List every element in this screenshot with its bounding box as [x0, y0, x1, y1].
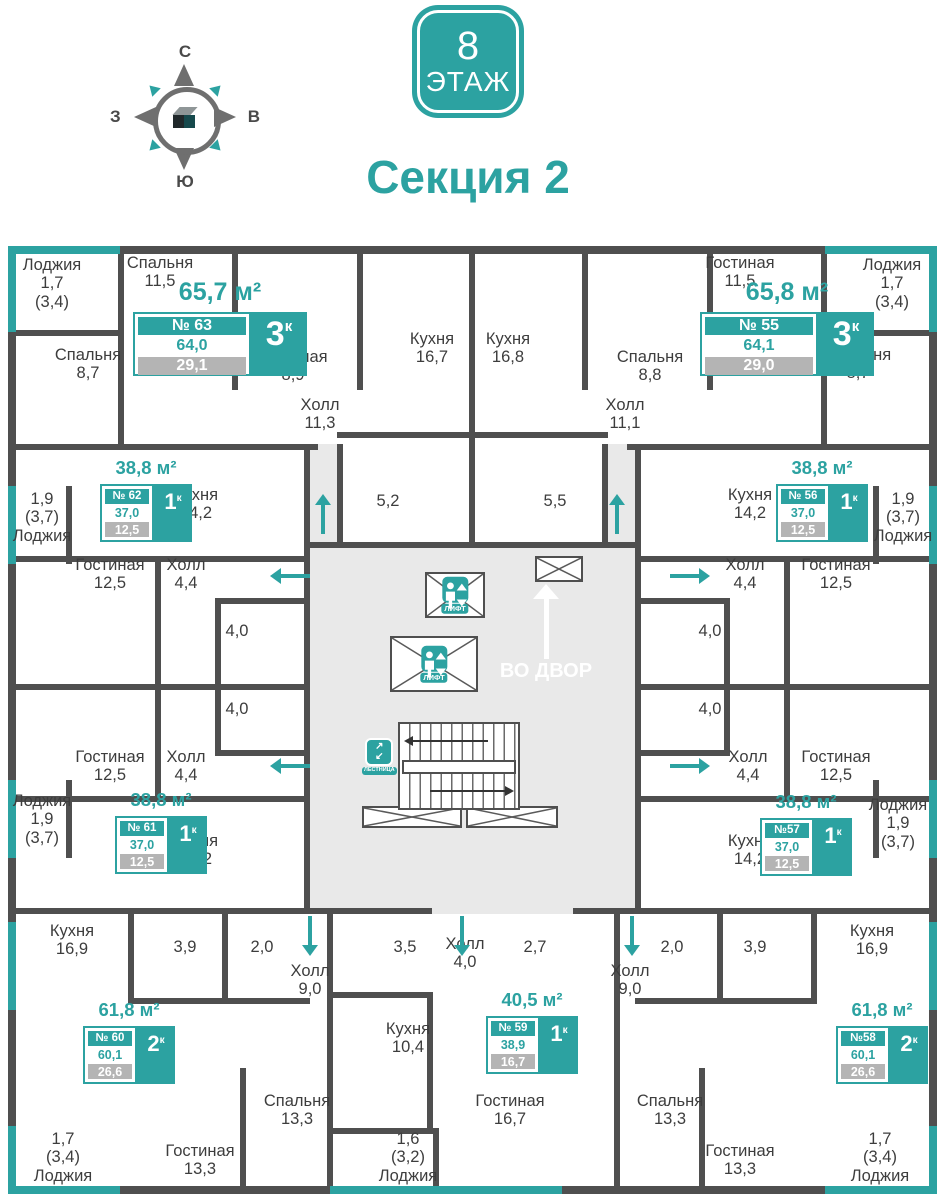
apartment-total-area: 38,8 м²: [792, 457, 853, 479]
apartment-living-area: 60,1: [88, 1048, 132, 1063]
stairwell: ↗↙ ЛЕСТНИЦА: [398, 722, 520, 810]
room-label: 4,0: [699, 700, 722, 718]
room-label: Лоджия1,9(3,7): [13, 792, 71, 847]
entry-arrow-icon: [623, 916, 641, 956]
apartment-card-62[interactable]: 38,8 м² № 6237,012,5 1к: [100, 484, 192, 542]
apartment-secondary-area: 16,7: [491, 1054, 535, 1069]
apartment-living-area: 37,0: [781, 506, 825, 521]
vent-shaft: [535, 556, 583, 582]
apartment-rooms-badge: 2к: [890, 1026, 928, 1084]
room-label: Холл11,1: [606, 396, 645, 433]
entry-arrow-icon: [608, 494, 626, 534]
apartment-secondary-area: 29,0: [705, 357, 813, 375]
apartment-card-63[interactable]: 65,7 м² № 6364,029,1 3к: [133, 312, 307, 376]
room-label: 4,0: [226, 700, 249, 718]
apartment-rooms-badge: 2к: [137, 1026, 175, 1084]
apartment-living-area: 64,1: [705, 337, 813, 355]
room-label: 1,7(3,4)Лоджия: [34, 1130, 92, 1185]
room-label: Гостиная13,3: [165, 1142, 234, 1179]
apartment-rooms-badge: 1к: [830, 484, 868, 542]
apartment-card-55[interactable]: 65,8 м² № 5564,129,0 3к: [700, 312, 874, 376]
room-label: Лоджия1,7(3,4): [23, 256, 81, 311]
room-label: 1,9(3,7)Лоджия: [13, 490, 71, 545]
apartment-secondary-area: 29,1: [138, 357, 246, 375]
apartment-card-57[interactable]: 38,8 м² №5737,012,5 1к: [760, 818, 852, 876]
room-label: 3,9: [744, 938, 767, 956]
room-label: Кухня16,7: [410, 330, 454, 367]
apartment-total-area: 61,8 м²: [99, 999, 160, 1021]
room-label: Лоджия1,7(3,4): [863, 256, 921, 311]
apartment-rooms-badge: 1к: [814, 818, 852, 876]
room-label: Гостиная12,5: [801, 748, 870, 785]
room-label: Холл4,4: [167, 556, 206, 593]
apartment-rooms-badge: 3к: [251, 312, 307, 376]
apartment-secondary-area: 26,6: [841, 1064, 885, 1079]
room-label: Спальня8,8: [617, 348, 683, 385]
elevator-shaft: ЛИФТ: [425, 572, 485, 618]
entry-arrow-icon: [314, 494, 332, 534]
apartment-living-area: 64,0: [138, 337, 246, 355]
apartment-card-60[interactable]: 61,8 м² № 6060,126,6 2к: [83, 1026, 175, 1084]
apartment-rooms-badge: 1к: [169, 816, 207, 874]
entry-arrow-icon: [270, 757, 310, 775]
room-label: Холл9,0: [611, 962, 650, 999]
room-label: Кухня10,4: [386, 1020, 430, 1057]
room-label: Гостиная12,5: [75, 556, 144, 593]
apartment-secondary-area: 12,5: [781, 522, 825, 537]
room-label: 1,7(3,4)Лоджия: [851, 1130, 909, 1185]
apartment-total-area: 61,8 м²: [852, 999, 913, 1021]
courtyard-label: ВО ДВОР: [500, 660, 592, 683]
room-label: 2,0: [661, 938, 684, 956]
apartment-number: №58: [841, 1031, 885, 1046]
apartment-living-area: 37,0: [120, 838, 164, 853]
room-label: 3,9: [174, 938, 197, 956]
apartment-total-area: 40,5 м²: [502, 989, 563, 1011]
apartment-number: № 55: [705, 317, 813, 335]
apartment-total-area: 65,8 м²: [746, 278, 828, 307]
floor-plan: ЛИФТ ЛИФТ: [0, 0, 945, 1200]
room-label: Гостиная13,3: [705, 1142, 774, 1179]
apartment-number: № 61: [120, 821, 164, 836]
room-label: Спальня8,7: [55, 346, 121, 383]
room-label: 4,0: [226, 622, 249, 640]
elevator-badge: ЛИФТ: [420, 646, 447, 683]
apartment-card-59[interactable]: 40,5 м² № 5938,916,7 1к: [486, 1016, 578, 1074]
room-label: Холл9,0: [291, 962, 330, 999]
apartment-card-61[interactable]: 38,8 м² № 6137,012,5 1к: [115, 816, 207, 874]
apartment-living-area: 38,9: [491, 1038, 535, 1053]
entry-arrow-icon: [670, 757, 710, 775]
room-label: 5,2: [377, 492, 400, 510]
room-label: Спальня13,3: [264, 1092, 330, 1129]
room-label: Гостиная16,7: [475, 1092, 544, 1129]
apartment-living-area: 60,1: [841, 1048, 885, 1063]
room-label: Спальня13,3: [637, 1092, 703, 1129]
stairs-label: ЛЕСТНИЦА: [362, 767, 397, 775]
entry-arrow-icon: [670, 567, 710, 585]
entry-arrow-icon: [270, 567, 310, 585]
room-label: Холл4,4: [167, 748, 206, 785]
room-label: 1,9(3,7)Лоджия: [874, 490, 932, 545]
stair-direction-arrow-icon: [430, 790, 506, 792]
room-label: Гостиная12,5: [801, 556, 870, 593]
entry-arrow-icon: [301, 916, 319, 956]
room-label: 5,5: [544, 492, 567, 510]
entry-arrow-icon: [453, 916, 471, 956]
stairs-badge: ↗↙ ЛЕСТНИЦА: [362, 738, 397, 775]
apartment-card-56[interactable]: 38,8 м² № 5637,012,5 1к: [776, 484, 868, 542]
room-label: 1,6(3,2)Лоджия: [379, 1130, 437, 1185]
room-label: 2,7: [524, 938, 547, 956]
room-label: 3,5: [394, 938, 417, 956]
room-label: Кухня14,2: [728, 486, 772, 523]
apartment-number: №57: [765, 823, 809, 838]
apartment-living-area: 37,0: [105, 506, 149, 521]
apartment-living-area: 37,0: [765, 840, 809, 855]
room-label: Лоджия1,9(3,7): [869, 796, 927, 851]
apartment-number: № 56: [781, 489, 825, 504]
courtyard-arrow-icon: [527, 584, 565, 660]
apartment-total-area: 65,7 м²: [179, 278, 261, 307]
apartment-secondary-area: 12,5: [765, 856, 809, 871]
apartment-secondary-area: 12,5: [105, 522, 149, 537]
apartment-rooms-badge: 1к: [154, 484, 192, 542]
stair-landing: [402, 760, 516, 774]
page: С В Ю З 8 ЭТАЖ Секция 2: [0, 0, 945, 1200]
elevator-icon: [442, 577, 468, 603]
room-label: Холл4,4: [729, 748, 768, 785]
room-label: Гостиная12,5: [75, 748, 144, 785]
room-label: 4,0: [699, 622, 722, 640]
stairs-icon: ↗↙: [365, 738, 393, 766]
apartment-number: № 63: [138, 317, 246, 335]
room-label: Холл4,4: [726, 556, 765, 593]
room-label: Кухня16,9: [850, 922, 894, 959]
apartment-secondary-area: 12,5: [120, 854, 164, 869]
apartment-rooms-badge: 1к: [540, 1016, 578, 1074]
apartment-rooms-badge: 3к: [818, 312, 874, 376]
apartment-total-area: 38,8 м²: [131, 789, 192, 811]
apartment-secondary-area: 26,6: [88, 1064, 132, 1079]
elevator-icon: [421, 646, 447, 672]
apartment-card-58[interactable]: 61,8 м² №5860,126,6 2к: [836, 1026, 928, 1084]
elevator-badge: ЛИФТ: [441, 577, 468, 614]
apartment-number: № 59: [491, 1021, 535, 1036]
apartment-number: № 62: [105, 489, 149, 504]
room-label: Кухня16,9: [50, 922, 94, 959]
apartment-total-area: 38,8 м²: [116, 457, 177, 479]
stair-direction-arrow-icon: [412, 740, 488, 742]
apartment-total-area: 38,8 м²: [776, 791, 837, 813]
room-label: Кухня16,8: [486, 330, 530, 367]
elevator-shaft: ЛИФТ: [390, 636, 478, 692]
room-label: 2,0: [251, 938, 274, 956]
apartment-number: № 60: [88, 1031, 132, 1046]
room-label: Холл11,3: [301, 396, 340, 433]
